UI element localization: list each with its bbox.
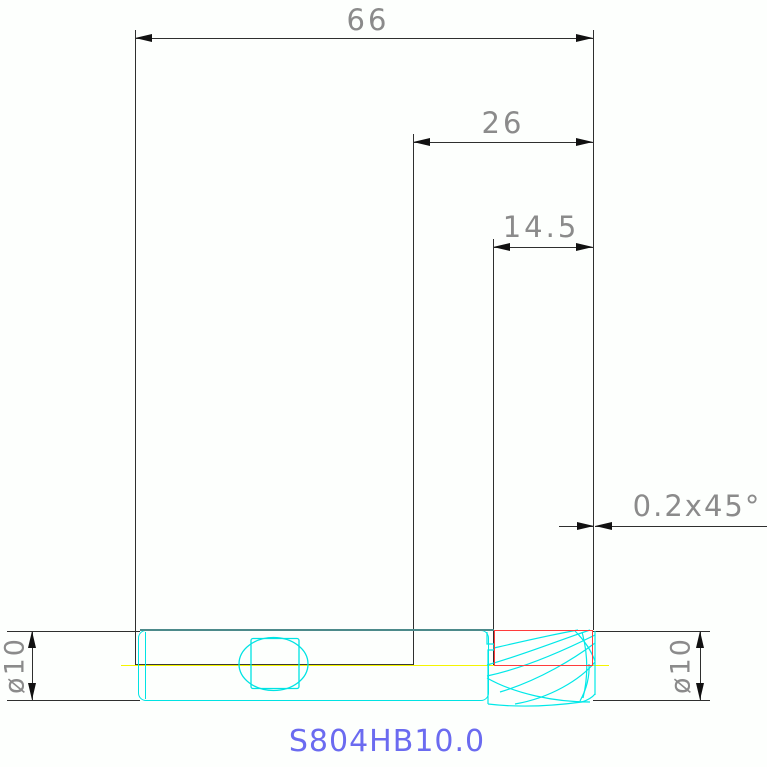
flute-bottom-edge [488, 694, 595, 706]
chamfer-leader-right [595, 526, 767, 527]
technical-drawing-canvas: 66 26 14.5 0.2x45° ø10 ø10 [0, 0, 767, 767]
dim-shank-diameter-text: ø10 [2, 628, 29, 704]
arrowhead-icon [595, 522, 612, 530]
dim-overall-length-line [135, 38, 593, 39]
extension-line-left-end [135, 30, 136, 665]
tool-shank-outline [138, 630, 489, 701]
arrowhead-icon [696, 631, 704, 648]
extension-line-26 [413, 134, 414, 665]
extension-line-14-5 [493, 239, 494, 666]
part-number-title: S804HB10.0 [277, 727, 497, 757]
arrowhead-icon [696, 683, 704, 700]
arrowhead-icon [28, 683, 36, 700]
arrowhead-icon [135, 34, 152, 42]
dim-exposed-length-text: 26 [465, 109, 541, 138]
flute-left-edge [487, 632, 494, 704]
arrowhead-icon [28, 631, 36, 648]
arrowhead-icon [413, 138, 430, 146]
cutting-zone-box [494, 630, 593, 666]
arrowhead-icon [576, 34, 593, 42]
arrowhead-icon [493, 243, 510, 251]
arrowhead-icon [577, 522, 594, 530]
shank-dia-ext-bottom [7, 700, 140, 701]
dim-chamfer-text: 0.2x45° [622, 492, 767, 521]
arrowhead-icon [576, 138, 593, 146]
tool-shank-end-face-line [145, 632, 146, 699]
dim-cutting-diameter-text: ø10 [668, 628, 695, 704]
weldon-flat [236, 634, 312, 694]
cutter-dia-ext-top [593, 631, 710, 632]
dim-exposed-length-line [413, 142, 593, 143]
arrowhead-icon [576, 243, 593, 251]
extension-line-right-end [593, 30, 594, 630]
cutter-dia-ext-bottom [593, 700, 710, 701]
tool-shank-top-edge [140, 629, 494, 631]
dim-overall-length-text: 66 [330, 6, 406, 35]
dim-flute-length-text: 14.5 [480, 213, 602, 242]
shank-dia-ext-top [7, 631, 140, 632]
